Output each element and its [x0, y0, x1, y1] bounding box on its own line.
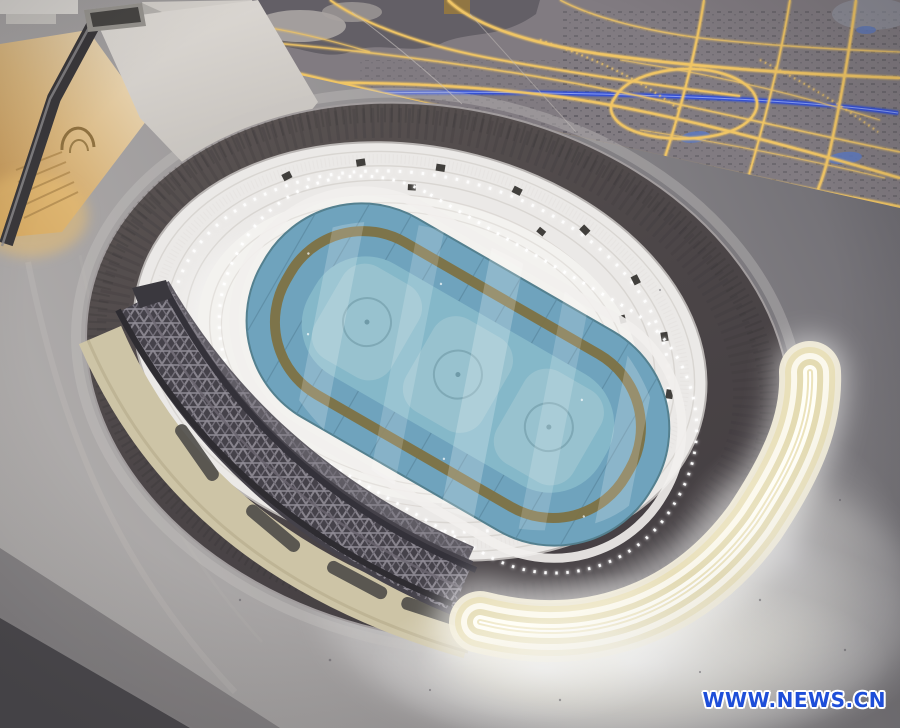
scale-model-scene	[0, 0, 900, 728]
news-photo: WWW.NEWS.CN	[0, 0, 900, 728]
watermark: WWW.NEWS.CN	[702, 690, 886, 710]
vignette	[0, 0, 900, 728]
